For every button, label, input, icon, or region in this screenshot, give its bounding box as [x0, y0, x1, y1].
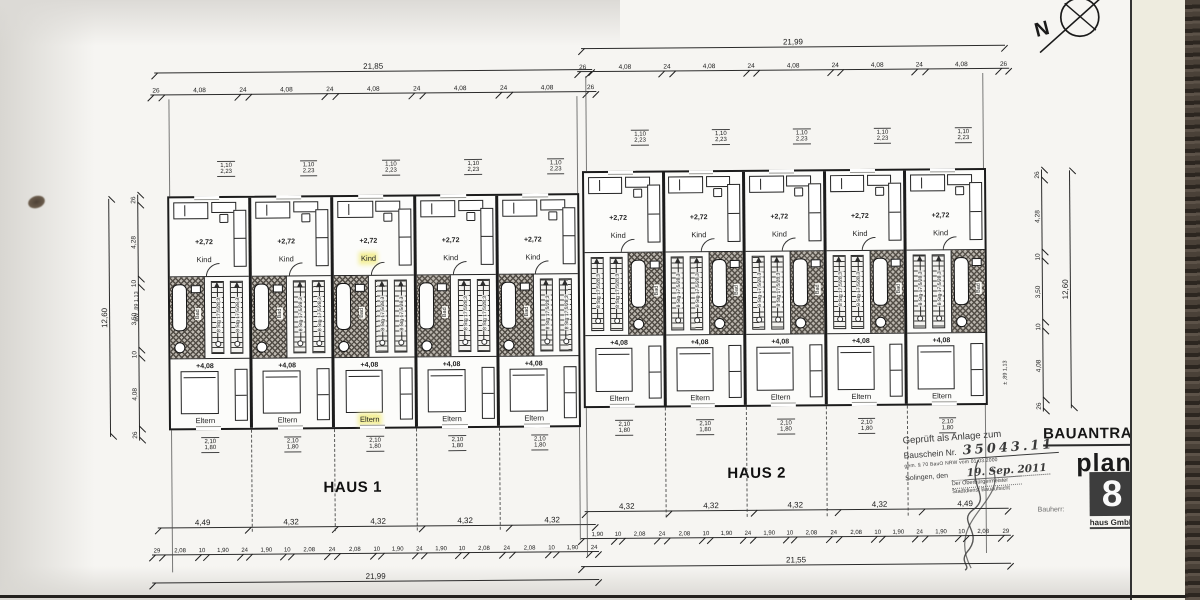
dim-segment: 1,90	[249, 541, 283, 554]
dim-chain: 21,99	[581, 33, 1005, 49]
toilet-icon	[421, 340, 432, 351]
dwelling-unit: +2,72KindBad8 Stg 17,5/28,38 Stg 17,5/28…	[584, 172, 666, 406]
window-bottom	[610, 404, 635, 408]
bath-label: Bad	[895, 282, 901, 294]
dim-segment: 24	[743, 525, 753, 538]
stair-note: 8 Stg 17,5/28,3	[564, 294, 570, 330]
bathtub-icon	[873, 258, 888, 306]
room-label: Kind	[746, 229, 814, 239]
closet-icon	[727, 184, 740, 242]
dim-segment: 10	[702, 525, 710, 538]
chair-icon	[633, 189, 642, 198]
dim-value: 29	[1002, 528, 1009, 534]
staircase: 8 Stg 17,5/28,38 Stg 17,5/28,3	[585, 253, 629, 335]
staircase: 8 Stg 17,5/28,38 Stg 17,5/28,3	[907, 250, 951, 332]
dwelling-unit: +2,72KindBad8 Stg 17,5/28,38 Stg 17,5/28…	[498, 195, 579, 426]
dim-value: 24	[416, 546, 423, 552]
dim-segment: 4,08	[925, 56, 998, 70]
closet-icon	[969, 182, 982, 240]
dim-segment: 10	[126, 279, 139, 288]
dim-segment: 24	[589, 539, 599, 552]
mid-band: Bad8 Stg 17,5/28,38 Stg 17,5/28,3	[665, 251, 743, 335]
window-dimension: 2,101,80	[777, 418, 795, 434]
dim-chain: 264,08244,08244,08244,08244,0826	[577, 56, 1009, 72]
dim-value: 1,90	[892, 529, 904, 535]
dim-value: 4,32	[544, 515, 560, 524]
dim-tick	[419, 526, 426, 533]
dim-tick	[506, 92, 513, 99]
window-height: 2,23	[877, 136, 889, 143]
sink-icon	[810, 260, 820, 268]
dim-segment: 26	[585, 79, 596, 92]
dim-tick	[585, 71, 592, 78]
floor-level: +4,08	[585, 340, 653, 348]
closet-icon	[564, 366, 577, 419]
window-dimension: 1,102,23	[217, 161, 235, 177]
stair-flight: 8 Stg 17,5/28,3	[770, 256, 784, 330]
stair-flight: 8 Stg 17,5/28,3	[913, 255, 927, 329]
dim-value: 4,49	[957, 499, 973, 508]
dim-tick	[1069, 167, 1076, 174]
chair-icon	[219, 214, 228, 223]
dwelling-unit: +2,72KindBad8 Stg 17,5/28,38 Stg 17,5/28…	[665, 172, 747, 406]
bauherr-label: Bauherr:	[1038, 506, 1065, 513]
closet-icon	[647, 184, 660, 242]
dim-segment: 24	[327, 541, 337, 554]
room-name: Kind	[525, 253, 540, 262]
floor-level: +4,08	[827, 338, 895, 346]
stair-flight: 8 Stg 17,5/28,3	[690, 257, 704, 331]
dim-tick	[138, 275, 145, 282]
window-dimension: 2,101,80	[858, 418, 876, 434]
bed-icon	[420, 200, 455, 217]
dim-value: 10	[284, 547, 291, 553]
dim-tick	[834, 509, 841, 516]
room-name: Eltern	[851, 392, 871, 401]
extension-line	[579, 427, 581, 540]
dim-tick	[149, 583, 156, 590]
dim-value: 4,32	[703, 501, 719, 510]
sheet-border-line	[1130, 0, 1132, 600]
dim-segment: 1,90	[710, 525, 743, 538]
stair-note: 8 Stg 17,5/28,3	[216, 297, 222, 333]
window-height: 2,23	[467, 167, 479, 174]
dim-segment: 12,60	[1057, 170, 1072, 408]
room-name: Kind	[279, 254, 294, 263]
dim-value: 2,08	[634, 531, 646, 537]
window-bottom	[196, 426, 221, 430]
dim-tick	[922, 69, 929, 76]
dim-tick	[495, 92, 502, 99]
dim-tick	[666, 511, 673, 518]
staircase: 8 Stg 17,5/28,38 Stg 17,5/28,3	[746, 252, 790, 334]
dim-value: 24	[916, 61, 923, 68]
closet-icon	[316, 209, 329, 266]
scanned-floor-plan-sheet: N HAUS 1 HAUS 2 Geprüft als Anlage zum B…	[0, 0, 1200, 600]
dim-segment: 4,08	[1030, 331, 1044, 401]
dim-value: 12,60	[100, 308, 109, 328]
dim-segment: 2,08	[337, 541, 373, 554]
dim-value: 26	[1000, 60, 1007, 67]
dim-tick	[619, 538, 626, 545]
dim-segment: 24	[415, 540, 425, 553]
dim-value: 4,32	[457, 516, 473, 525]
bath-label: Bad	[524, 306, 530, 318]
dim-value: 26	[1034, 171, 1041, 178]
dim-chain: 4,494,324,324,324,32	[158, 512, 596, 528]
dim-value: 4,08	[619, 63, 632, 70]
dim-value: 26	[152, 87, 159, 94]
dim-value: 2,08	[977, 528, 989, 534]
floor-level: +2,72	[665, 214, 733, 222]
bath-label: Bad	[442, 306, 448, 318]
window-dimension: 1,102,23	[464, 159, 482, 175]
dim-segment: 21,85	[154, 57, 592, 73]
dim-tick	[740, 537, 747, 544]
room-label: Kind	[665, 230, 733, 240]
extension-line	[576, 96, 578, 193]
dim-value: 10	[373, 546, 380, 552]
dim-tick	[592, 91, 599, 98]
room-name: Kind	[852, 229, 867, 238]
bathroom: Bad	[950, 250, 985, 332]
dim-segment: 26	[1031, 401, 1044, 412]
dim-segment: 4,08	[422, 80, 498, 94]
dim-segment: 24	[830, 57, 841, 70]
dim-value: 4,08	[1035, 360, 1042, 373]
dim-value: 1,90	[721, 530, 733, 536]
dim-segment: 10	[1030, 323, 1043, 332]
window-dimension: 2,101,80	[366, 436, 384, 452]
dim-value: 12,60	[1060, 279, 1069, 299]
staircase: 8 Stg 17,5/28,38 Stg 17,5/28,3	[369, 276, 414, 357]
window-height: 1,80	[369, 444, 381, 451]
window-height: 1,80	[699, 427, 711, 434]
dim-tick	[1043, 397, 1050, 404]
room-label: Eltern	[253, 415, 322, 425]
dim-value: 24	[500, 84, 507, 91]
floor-level: +4,08	[908, 337, 976, 345]
stair-note: 8 Stg 17,5/28,3	[856, 271, 862, 307]
room-name: Eltern	[196, 416, 216, 425]
dim-segment: 29	[1001, 523, 1011, 536]
bed-icon	[338, 201, 373, 218]
bed-icon	[837, 346, 874, 390]
room-name: Eltern	[771, 393, 791, 402]
dim-tick	[707, 537, 714, 544]
toilet-icon	[634, 319, 645, 330]
window-height: 1,80	[619, 428, 631, 435]
stair-flight: 8 Stg 17,5/28,3	[375, 280, 389, 353]
dim-segment: 4,32	[837, 496, 921, 510]
chair-icon	[301, 213, 310, 222]
dim-tick	[378, 553, 385, 560]
stair-note: 8 Stg 17,5/28,3	[545, 294, 551, 330]
extension-line	[982, 73, 984, 168]
dim-segment: 4,49	[922, 496, 1009, 510]
extension-line	[168, 99, 170, 196]
dim-value: 26	[1035, 402, 1042, 409]
bathroom: Bad	[709, 252, 744, 334]
room-name: Kind	[197, 255, 212, 264]
window-bottom	[360, 425, 385, 429]
closet-icon	[729, 345, 742, 398]
dim-value: 10	[199, 548, 206, 554]
dim-segment: 4,32	[509, 512, 596, 526]
dim-tick	[912, 536, 919, 543]
dim-tick	[195, 554, 202, 561]
window-height: 2,23	[385, 168, 397, 175]
bed-icon	[427, 369, 465, 413]
stair-note: 8 Stg 17,5/28,3	[317, 296, 323, 332]
bathtub-icon	[172, 284, 187, 331]
dim-tick	[1042, 248, 1049, 255]
dim-tick	[871, 536, 878, 543]
window-dimension: 1,102,23	[954, 127, 972, 143]
window-top	[276, 195, 301, 199]
window-dimension: 2,101,80	[201, 437, 219, 453]
dim-segment: 1,90	[753, 525, 786, 538]
room-label: Kind	[170, 255, 239, 265]
window-height: 2,23	[303, 168, 315, 175]
window-dimension: 1,102,23	[547, 158, 565, 174]
toilet-icon	[503, 340, 514, 351]
dim-value: 10	[874, 529, 881, 535]
desk-icon	[376, 201, 401, 212]
dim-segment: 10	[614, 526, 622, 539]
bathroom: Bad	[499, 275, 534, 356]
room-label: Eltern	[747, 393, 815, 403]
floor-level: +4,08	[417, 361, 486, 369]
mid-band: Bad8 Stg 17,5/28,38 Stg 17,5/28,3	[170, 276, 250, 359]
dim-value: 1,90	[261, 547, 273, 553]
bed-icon	[345, 369, 383, 413]
dim-segment: 29	[152, 542, 162, 555]
floor-level: +2,72	[416, 237, 485, 245]
dim-tick	[321, 93, 328, 100]
floor-level: +4,08	[499, 360, 568, 368]
dim-value: 4,08	[131, 388, 138, 401]
floor-level: +4,08	[666, 339, 734, 347]
floor-level: +2,72	[498, 237, 567, 245]
dim-segment: 24	[746, 58, 757, 71]
window-height: 2,23	[796, 136, 808, 143]
extension-line	[171, 430, 173, 572]
dim-value: 2,08	[349, 546, 361, 552]
dim-segment: 2,08	[622, 526, 657, 539]
stair-flight: 8 Stg 17,5/28,3	[477, 279, 491, 352]
dwelling-unit: +2,72KindBad8 Stg 17,5/28,38 Stg 17,5/28…	[745, 171, 827, 405]
reference-dashline	[251, 430, 253, 532]
bath-label: Bad	[654, 284, 660, 296]
building-haus2: +2,72KindBad8 Stg 17,5/28,38 Stg 17,5/28…	[582, 168, 988, 408]
dim-segment: 24	[662, 58, 673, 71]
dim-segment: 4,08	[335, 80, 411, 94]
window-dimension: 1,102,23	[300, 160, 318, 176]
bathtub-icon	[336, 283, 351, 330]
dim-segment: 4,08	[126, 359, 140, 430]
dim-chain: 12,60	[1057, 170, 1072, 408]
bed-icon	[918, 345, 955, 389]
dim-segment: 1,90	[882, 524, 915, 537]
bathroom: Bad	[334, 276, 369, 357]
dim-segment: 21,99	[152, 567, 599, 584]
dim-tick	[246, 554, 253, 561]
dim-chain: 21,85	[154, 57, 592, 73]
floor-level: +4,08	[335, 362, 404, 370]
dim-tick	[578, 48, 585, 55]
dim-value: 26	[132, 432, 139, 439]
stair-note: 8 Stg 17,5/28,3	[235, 297, 241, 333]
extension-line	[586, 408, 588, 556]
dim-segment: 4,08	[756, 57, 829, 71]
stair-flight: 8 Stg 17,5/28,3	[230, 281, 244, 354]
dim-value: 2,08	[303, 547, 315, 553]
dim-value: 1,90	[567, 545, 579, 551]
dim-value: 2,08	[174, 548, 186, 554]
dim-tick	[506, 525, 513, 532]
dim-tick	[1043, 327, 1050, 334]
dim-tick	[1042, 257, 1049, 264]
dim-value: 10	[958, 529, 965, 535]
staircase: 8 Stg 17,5/28,38 Stg 17,5/28,3	[665, 252, 709, 334]
staircase: 8 Stg 17,5/28,38 Stg 17,5/28,3	[451, 275, 496, 356]
dim-tick	[139, 355, 146, 362]
dim-segment: 4,32	[585, 498, 669, 512]
window-top	[930, 168, 955, 172]
dim-value: 26	[130, 196, 137, 203]
window-height: 1,80	[204, 445, 216, 452]
dim-value: 1,90	[217, 547, 229, 553]
dim-tick	[654, 538, 661, 545]
dim-value: 2,08	[524, 545, 536, 551]
dim-tick	[412, 553, 419, 560]
mid-band: Bad8 Stg 17,5/28,38 Stg 17,5/28,3	[746, 250, 824, 334]
dim-tick	[463, 552, 470, 559]
dim-value: 4,08	[787, 62, 800, 69]
closet-icon	[480, 207, 493, 264]
dim-tick	[1041, 166, 1048, 173]
dim-value: 26	[579, 64, 586, 71]
dim-tick	[750, 510, 757, 517]
room-name: Eltern	[360, 415, 380, 424]
window-height: 2,23	[957, 135, 969, 142]
dim-segment: 4,32	[335, 513, 422, 527]
dwelling-unit: +2,72KindBad8 Stg 17,5/28,38 Stg 17,5/28…	[826, 171, 908, 405]
dim-value: 4,32	[619, 501, 635, 510]
bath-label: Bad	[815, 283, 821, 295]
dim-tick	[750, 537, 757, 544]
dim-segment: 26	[127, 430, 140, 441]
room-name: Eltern	[932, 391, 952, 400]
dim-segment: 4,32	[669, 498, 753, 512]
window-height: 1,80	[287, 444, 299, 451]
room-name: Kind	[772, 229, 787, 238]
bathroom: Bad	[170, 277, 205, 358]
room-label: Eltern	[335, 415, 404, 425]
dim-tick	[288, 554, 295, 561]
floor-level: +4,08	[253, 362, 322, 370]
dim-segment: 4,28	[1029, 180, 1043, 252]
dim-value: 10	[703, 531, 710, 537]
bathroom: Bad	[870, 251, 905, 333]
stair-flight: 8 Stg 17,5/28,3	[394, 280, 408, 353]
dim-value: 21,55	[786, 555, 806, 564]
dim-tick	[138, 201, 145, 208]
window-top	[358, 195, 383, 199]
window-dimension: 2,101,80	[696, 419, 714, 435]
mid-band: Bad8 Stg 17,5/28,38 Stg 17,5/28,3	[907, 249, 985, 333]
dim-value: 1,90	[392, 546, 404, 552]
window-dimension: 1,102,23	[874, 128, 892, 144]
dim-segment: 24	[657, 525, 667, 538]
dim-value: 4,08	[703, 63, 716, 70]
window-bottom	[771, 402, 796, 406]
dim-segment: 10	[786, 524, 794, 537]
dim-segment: 24	[829, 524, 839, 537]
dim-segment: 2,08	[162, 542, 198, 555]
room-name: Kind	[611, 231, 626, 240]
dim-segment: 2,08	[838, 524, 873, 537]
stair-flight: 8 Stg 17,5/28,3	[211, 281, 225, 354]
dim-segment: 24	[498, 80, 509, 93]
bathtub-icon	[792, 258, 807, 306]
dim-value: 3,50	[1034, 286, 1041, 299]
desk-icon	[293, 201, 318, 212]
sill-height-note: BW ,89 1,13	[134, 291, 140, 321]
dim-tick	[791, 537, 798, 544]
dim-value: 2,08	[679, 531, 691, 537]
window-dimension: 1,102,23	[631, 130, 649, 146]
dim-value: 24	[916, 529, 923, 535]
bed-icon	[181, 371, 219, 415]
bath-label: Bad	[277, 308, 283, 320]
drawing-area: N HAUS 1 HAUS 2 Geprüft als Anlage zum B…	[0, 0, 1200, 600]
dim-segment: 24	[914, 56, 925, 69]
chair-icon	[714, 188, 723, 197]
stair-note: 8 Stg 17,5/28,3	[482, 295, 488, 331]
dim-value: 4,08	[454, 85, 467, 92]
dim-tick	[838, 69, 845, 76]
dim-value: 4,28	[130, 236, 137, 249]
staircase: 8 Stg 17,5/28,38 Stg 17,5/28,3	[287, 276, 332, 357]
dim-segment: 4,32	[753, 497, 837, 511]
dim-tick	[783, 537, 790, 544]
dim-segment: 10	[458, 540, 466, 553]
dim-tick	[879, 536, 886, 543]
dim-value: 1,90	[935, 529, 947, 535]
plan8-logo-digit: 8	[1102, 473, 1123, 515]
dim-segment: 10	[283, 541, 291, 554]
window-height: 2,23	[220, 169, 232, 176]
dim-chain: 264,08244,08244,08244,08244,0826	[150, 79, 596, 96]
mid-band: Bad8 Stg 17,5/28,38 Stg 17,5/28,3	[334, 275, 414, 358]
dim-tick	[1001, 45, 1008, 52]
dim-value: 24	[239, 86, 246, 93]
floor-level: +2,72	[746, 213, 814, 221]
dim-segment: 24	[502, 540, 512, 553]
dim-value: 10	[131, 351, 138, 358]
dim-tick	[137, 192, 144, 199]
bathtub-icon	[501, 281, 516, 328]
room-label: Eltern	[908, 391, 976, 401]
dim-segment: 4,08	[162, 82, 238, 96]
dim-tick	[334, 553, 341, 560]
floor-level: +2,72	[334, 238, 403, 246]
window-height: 2,23	[634, 138, 646, 145]
stair-flight: 8 Stg 17,5/28,3	[752, 256, 766, 330]
room-label: Eltern	[586, 394, 654, 404]
